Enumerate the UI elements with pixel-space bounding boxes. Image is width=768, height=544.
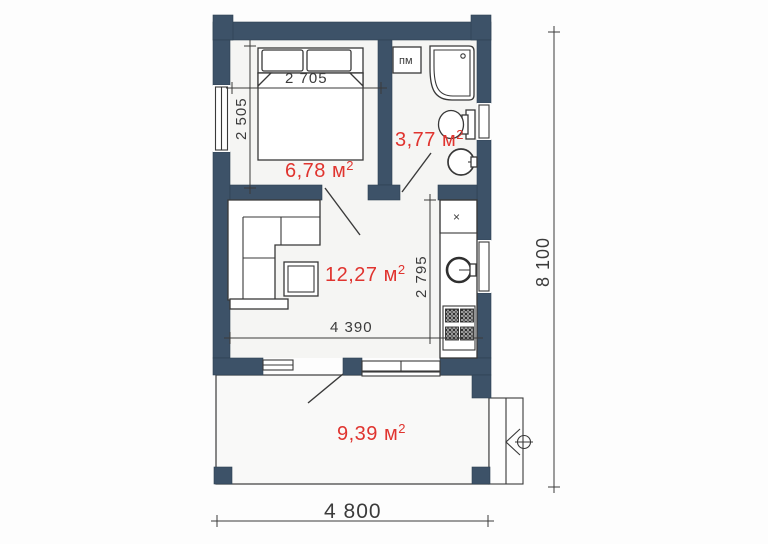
washing-machine-label: пм xyxy=(399,55,413,67)
dim-overall-depth-label: 8 100 xyxy=(533,237,553,287)
terrace-area-label: 9,39 м2 xyxy=(337,421,406,445)
double-bed-icon xyxy=(258,48,363,160)
wall-bathroom-bottom xyxy=(438,185,477,200)
wall-top-right-post xyxy=(471,15,491,40)
dim-bed-width-label: 2 705 xyxy=(285,70,328,87)
floor-plan-page: × пм xyxy=(0,0,768,544)
terrace-post-bottom-left xyxy=(214,467,232,484)
coffee-table-icon xyxy=(284,262,318,296)
washing-machine-icon: пм xyxy=(393,47,421,73)
pillow-left xyxy=(262,50,303,71)
kitchen-cabinet-label: × xyxy=(453,210,460,224)
corner-bathtub-icon xyxy=(430,46,474,100)
living-area-label: 12,27 м2 xyxy=(325,262,406,286)
dim-kitchen-depth-label: 2 795 xyxy=(413,255,430,298)
terrace-sliding-window-icon xyxy=(362,361,440,376)
terrace-post-top-right xyxy=(472,375,491,398)
wall-bottom-left xyxy=(213,358,263,375)
living-small-window-icon xyxy=(263,360,293,370)
bathroom-window-icon xyxy=(477,103,491,140)
floor-plan-drawing: × пм xyxy=(0,0,768,544)
wall-bottom-jamb xyxy=(343,358,362,375)
sofa-ottoman xyxy=(230,299,288,309)
pillow-right xyxy=(307,50,351,71)
wall-top-left-post xyxy=(213,15,233,40)
wall-right-upper xyxy=(477,40,491,103)
wall-hall-footer xyxy=(368,185,400,200)
terrace-post-bottom-right xyxy=(472,467,490,484)
dim-bedroom-depth-label: 2 505 xyxy=(233,97,250,140)
kitchen-counter-icon: × xyxy=(440,200,477,358)
wall-right-lower xyxy=(477,293,491,358)
bedroom-area-label: 6,78 м2 xyxy=(285,158,354,182)
bathroom-area-label: 3,77 м2 xyxy=(395,127,464,151)
kitchen-window-icon xyxy=(477,240,491,293)
wall-bedroom-bathroom xyxy=(378,40,392,185)
wall-bottom-right xyxy=(440,358,491,375)
wall-right-mid xyxy=(477,140,491,240)
bedroom-window-icon xyxy=(213,85,230,152)
wall-left-upper xyxy=(213,40,230,85)
dim-overall-width-label: 4 800 xyxy=(324,500,382,523)
wall-bedroom-living xyxy=(230,185,322,200)
dim-living-width-label: 4 390 xyxy=(330,319,373,336)
wall-top xyxy=(213,22,491,40)
